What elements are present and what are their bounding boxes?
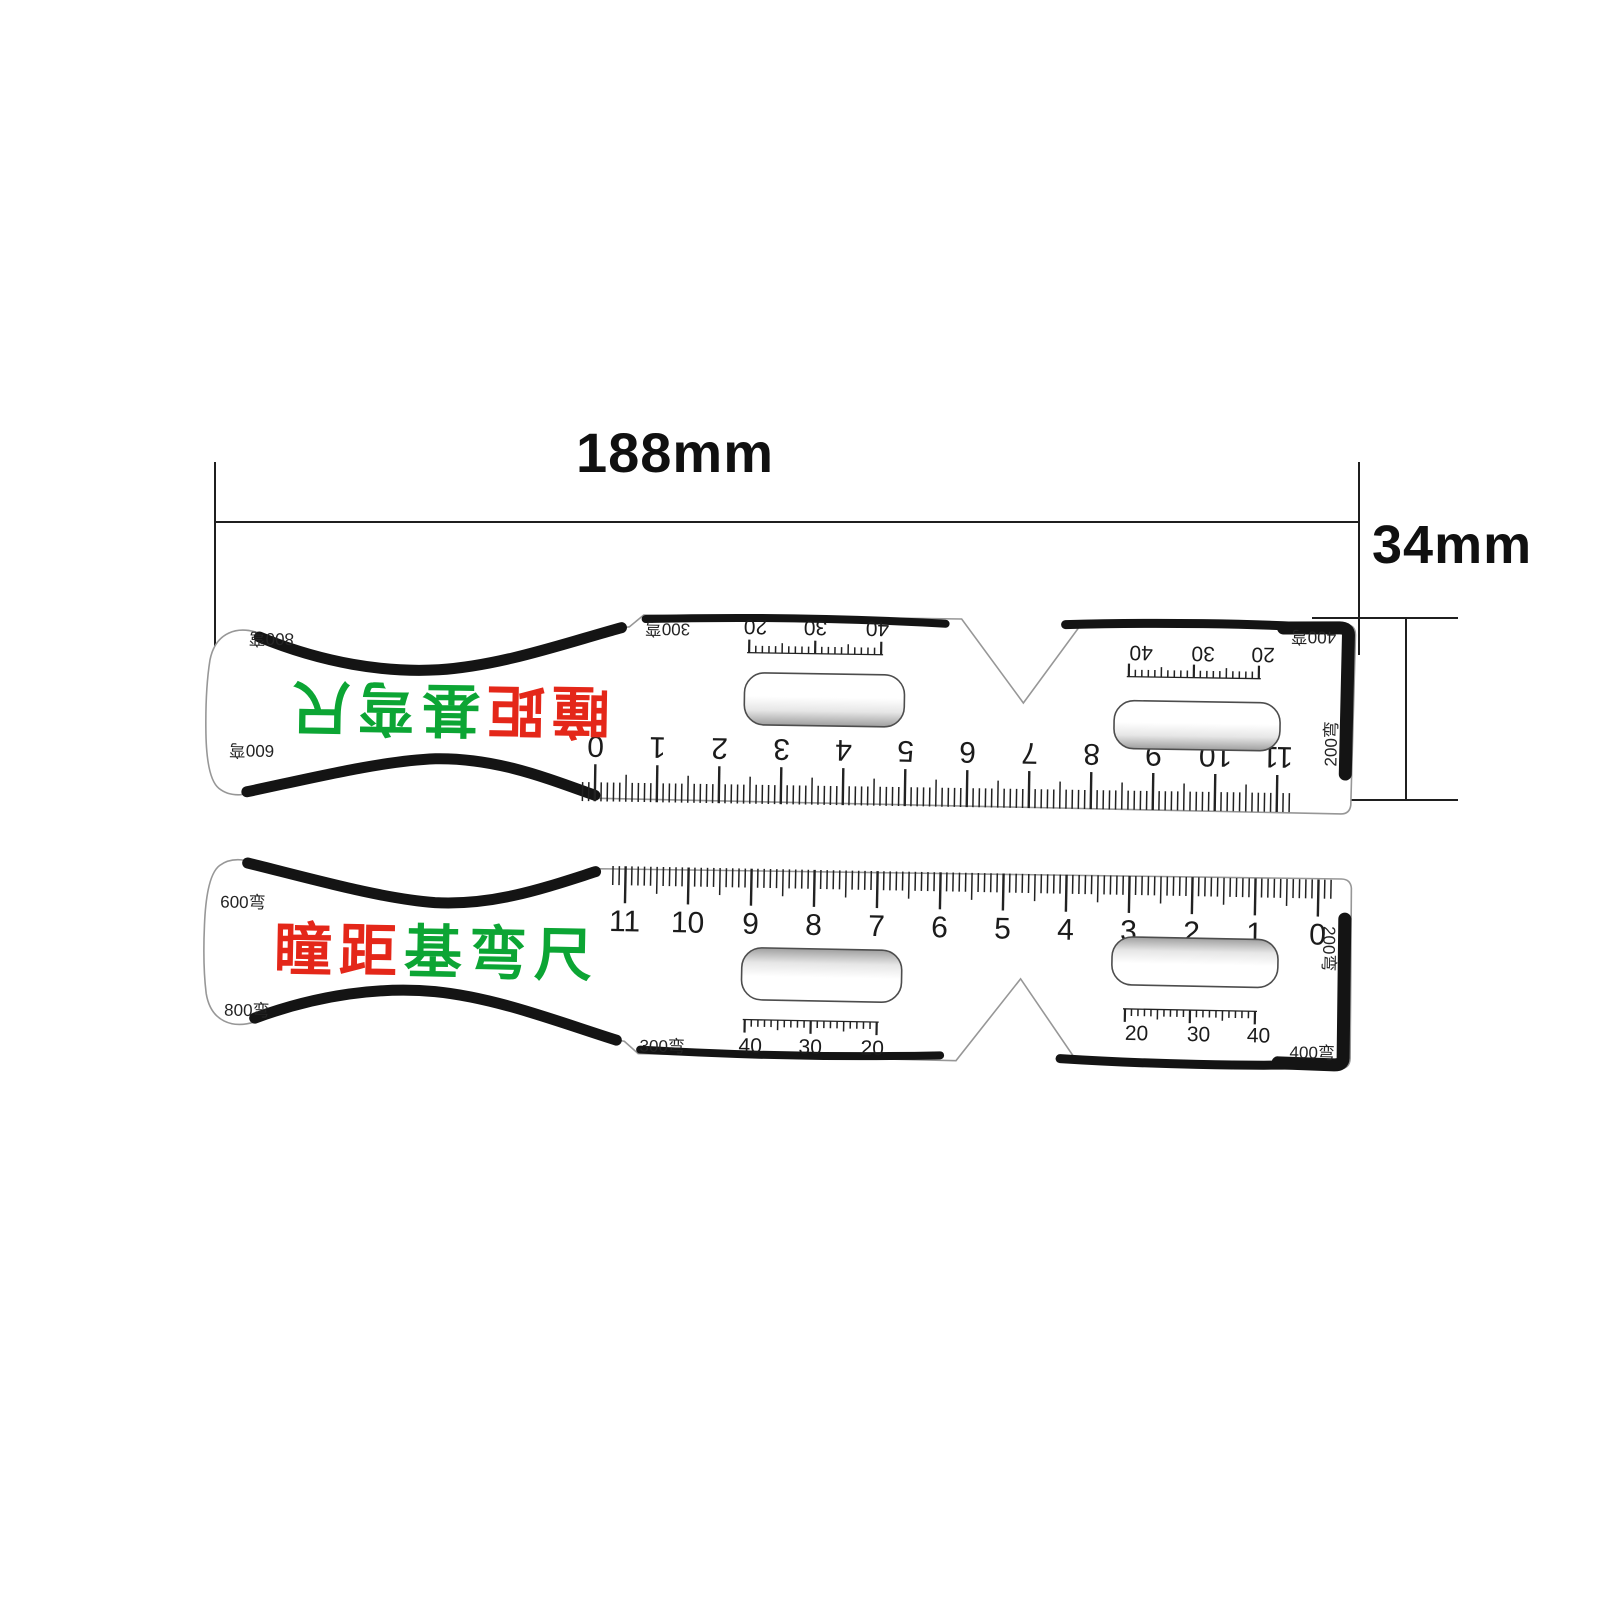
brand-title: 瞳距基弯尺 <box>273 918 599 989</box>
curve-label-bottom_right: 400弯 <box>1289 1043 1335 1063</box>
scale-number: 6 <box>931 911 948 944</box>
scale-number: 7 <box>1021 736 1038 769</box>
curve-label-inner_left: 300弯 <box>639 1037 685 1057</box>
curve-label-top_left: 600弯 <box>220 892 266 912</box>
lens-scale-number: 30 <box>1187 1023 1211 1046</box>
width-dimension-tick-right <box>1358 462 1360 655</box>
height-dimension-line <box>1405 618 1407 800</box>
lens-scale-number: 40 <box>738 1034 762 1057</box>
height-dimension-tick-bottom <box>1340 799 1458 801</box>
lens-scale-number: 20 <box>744 615 768 638</box>
pd-ruler-front: 11109876543210403020203040瞳距基弯尺600弯800弯3… <box>192 845 1356 1083</box>
right-lens-cutout <box>1111 937 1278 988</box>
left-lens-cutout <box>744 673 905 728</box>
brand-title: 瞳距基弯尺 <box>285 673 611 743</box>
lens-scale-number: 40 <box>1129 641 1153 664</box>
scale-number: 11 <box>609 905 641 939</box>
scale-number: 6 <box>959 735 976 768</box>
lens-scale-number: 40 <box>866 616 890 639</box>
scale-number: 8 <box>1083 737 1100 770</box>
brand-title-text: 瞳距基弯尺 <box>285 673 611 743</box>
scale-number: 7 <box>868 910 885 943</box>
curve-label-top_right: 400弯 <box>1291 627 1337 647</box>
lens-scale-number: 40 <box>1247 1024 1271 1047</box>
scale-number: 2 <box>711 731 728 764</box>
scale-number: 9 <box>742 908 759 941</box>
curve-label-top_left: 800弯 <box>248 629 294 649</box>
curve-label-bottom_left: 800弯 <box>224 1001 270 1021</box>
height-dimension-label: 34mm <box>1372 514 1532 576</box>
lens-scale-number: 20 <box>1125 1022 1149 1045</box>
curve-label-right_vertical: 200弯 <box>1321 721 1341 767</box>
width-dimension-line <box>215 521 1360 523</box>
lens-scale-number: 20 <box>1251 643 1275 666</box>
scale-number: 10 <box>671 906 705 940</box>
lens-scale-number: 30 <box>1191 642 1215 665</box>
scale-number: 4 <box>835 733 852 766</box>
scale-number: 5 <box>994 912 1011 945</box>
scale-number: 1 <box>649 730 666 763</box>
left-lens-cutout <box>741 948 902 1003</box>
scale-number: 5 <box>897 734 914 767</box>
curve-label-right_vertical: 200弯 <box>1319 926 1339 972</box>
scale-number: 8 <box>805 909 822 942</box>
lens-scale-number: 30 <box>804 616 828 639</box>
right-lens-cutout <box>1114 700 1281 751</box>
scale-number: 3 <box>773 732 790 765</box>
lens-scale-number: 20 <box>860 1037 884 1060</box>
lens-scale-number: 30 <box>798 1036 822 1059</box>
scale-number: 4 <box>1057 914 1074 947</box>
brand-title-text: 瞳距基弯尺 <box>273 918 599 989</box>
curve-label-bottom_left: 600弯 <box>229 741 275 761</box>
width-dimension-label: 188mm <box>540 420 810 485</box>
pd-ruler-back: 01234567891011203040403020瞳距基弯尺800弯600弯3… <box>195 592 1358 826</box>
product-photo: 188mm 34mm 01234567891011203040403020瞳距基… <box>0 0 1600 1600</box>
curve-label-inner_left: 300弯 <box>645 619 691 639</box>
